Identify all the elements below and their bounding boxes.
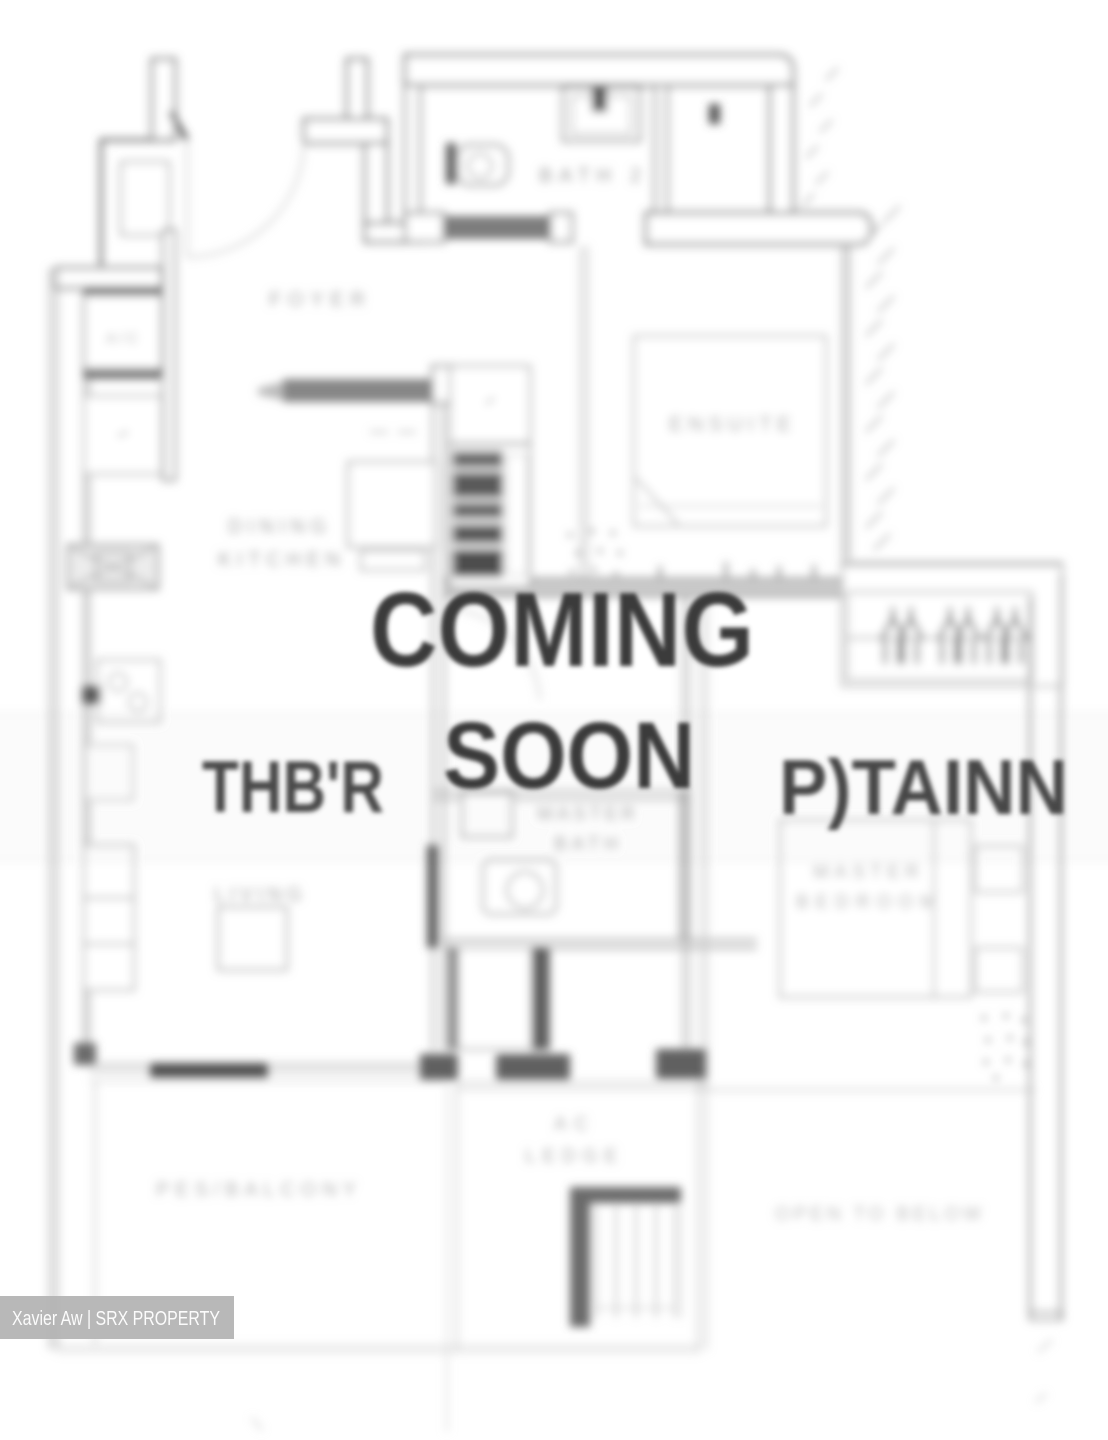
svg-text:DINING: DINING: [228, 516, 326, 538]
svg-text:KITCHEN: KITCHEN: [218, 549, 340, 571]
svg-text:THB'R: THB'R: [202, 747, 384, 828]
svg-text:LEDGE: LEDGE: [525, 1146, 617, 1167]
svg-text:AC: AC: [554, 1114, 588, 1135]
svg-text:Xavier Aw | SRX PROPERTY: Xavier Aw | SRX PROPERTY: [12, 1308, 220, 1330]
svg-text:OPEN TO BELOW: OPEN TO BELOW: [775, 1204, 981, 1225]
svg-text:LIVING: LIVING: [214, 884, 302, 906]
svg-text:COMING: COMING: [370, 571, 754, 689]
svg-text:P)TAINN: P)TAINN: [779, 743, 1068, 831]
svg-text:A/C: A/C: [106, 330, 138, 347]
svg-text:FOYER: FOYER: [269, 289, 365, 311]
svg-text:SOON: SOON: [443, 703, 695, 809]
svg-text:BATH 2: BATH 2: [539, 165, 641, 187]
svg-text:PES/BALCONY: PES/BALCONY: [156, 1179, 356, 1201]
